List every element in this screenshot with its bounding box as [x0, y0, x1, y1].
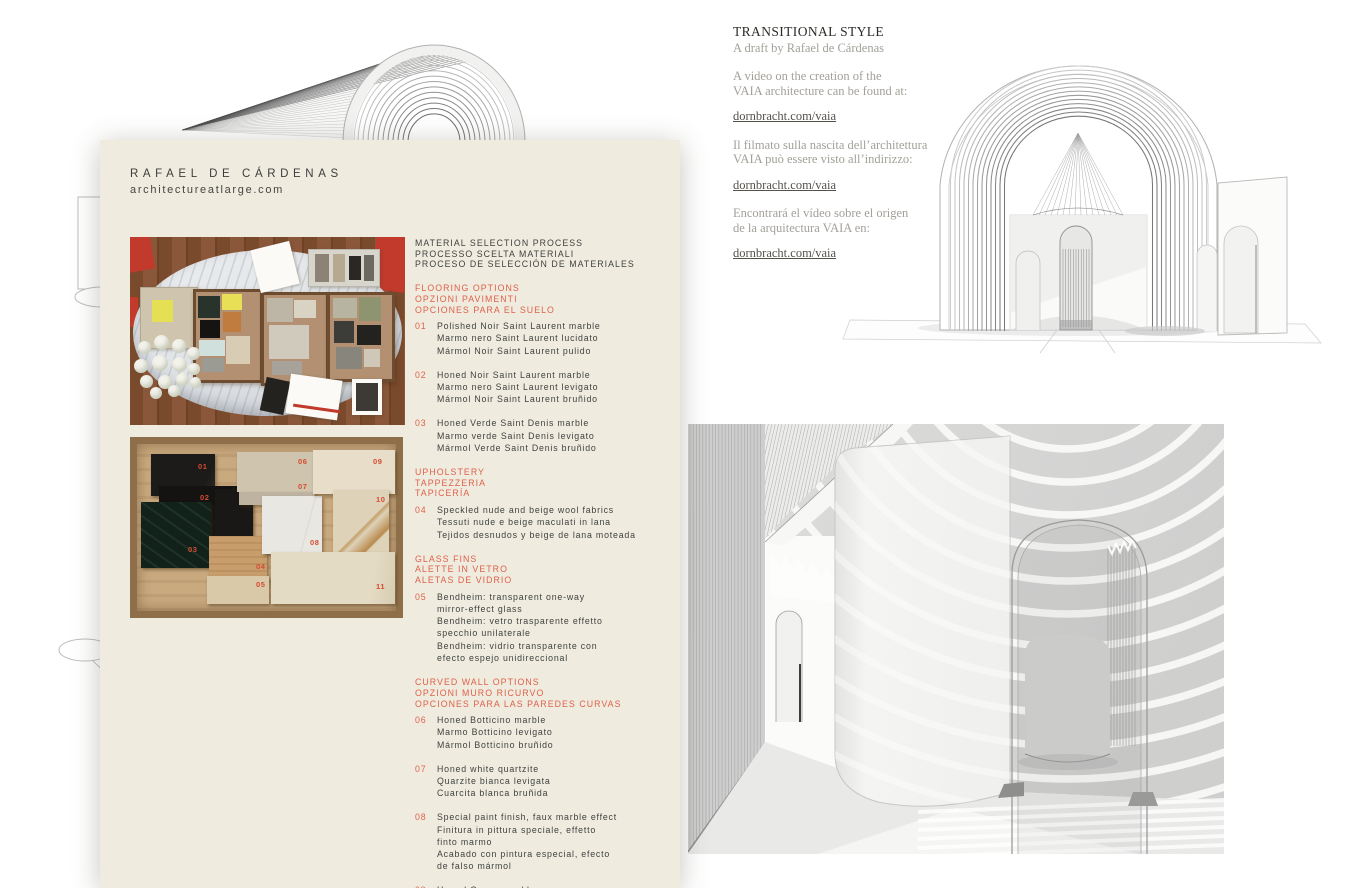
- small-photos: [352, 379, 382, 415]
- material-item-lines: Polished Noir Saint Laurent marbleMarmo …: [437, 320, 601, 357]
- flower-bouquet: [132, 333, 210, 401]
- section-heading-line: ALETTE IN VETRO: [415, 564, 673, 575]
- red-chair: [130, 237, 155, 273]
- material-item-line: Acabado con pintura especial, efecto: [437, 848, 617, 860]
- material-item-line: Tejidos desnudos y beige de lana moteada: [437, 529, 636, 541]
- material-item-number: 02: [415, 369, 437, 406]
- intro-paragraph-line: VAIA architecture can be found at:: [733, 84, 933, 99]
- material-item-line: Honed Crema marble: [437, 884, 543, 888]
- material-item-line: Marmo verde Saint Denis levigato: [437, 430, 597, 442]
- intro-line: PROCESO DE SELECCIÓN DE MATERIALES: [415, 259, 673, 270]
- section-heading-line: OPZIONI MURO RICURVO: [415, 688, 673, 699]
- material-item-line: specchio unilaterale: [437, 627, 603, 639]
- material-item-number: 06: [415, 714, 437, 751]
- material-item-number: 03: [415, 417, 437, 454]
- sample-tray: [261, 292, 329, 386]
- material-item: 03Honed Verde Saint Denis marbleMarmo ve…: [415, 417, 673, 454]
- sample-number: 04: [256, 562, 266, 571]
- page: TRANSITIONAL STYLE A draft by Rafael de …: [0, 0, 1356, 888]
- material-item-lines: Honed Botticino marbleMarmo Botticino le…: [437, 714, 554, 751]
- material-item-lines: Honed Verde Saint Denis marbleMarmo verd…: [437, 417, 597, 454]
- intro-text-column: TRANSITIONAL STYLE A draft by Rafael de …: [733, 25, 933, 261]
- material-item-line: efecto espejo unidireccional: [437, 652, 603, 664]
- section-heading-line: OPCIONES PARA EL SUELO: [415, 305, 673, 316]
- sample-number: 05: [256, 580, 266, 589]
- material-item-line: finto marmo: [437, 836, 617, 848]
- materials-intro: MATERIAL SELECTION PROCESSPROCESSO SCELT…: [415, 238, 673, 270]
- material-item-line: Mármol Verde Saint Denis bruñido: [437, 442, 597, 454]
- material-item-number: 08: [415, 811, 437, 872]
- material-item-line: Mármol Botticino bruñido: [437, 739, 554, 751]
- section-heading-line: UPHOLSTERY: [415, 467, 673, 478]
- sample-09: [313, 450, 395, 494]
- intro-paragraph-line: Encontrará el vídeo sobre el origen: [733, 206, 933, 221]
- material-item: 06Honed Botticino marbleMarmo Botticino …: [415, 714, 673, 751]
- material-item-line: Mármol Noir Saint Laurent pulido: [437, 345, 601, 357]
- intro-line: PROCESSO SCELTA MATERIALI: [415, 249, 673, 260]
- sample-number: 10: [376, 495, 386, 504]
- section-heading: FLOORING OPTIONSOPZIONI PAVIMENTIOPCIONE…: [415, 283, 673, 315]
- material-item-line: Bendheim: transparent one-way: [437, 591, 603, 603]
- material-item-number: 09: [415, 884, 437, 888]
- sticky-note: [152, 300, 173, 322]
- sample-number: 08: [310, 538, 320, 547]
- vault-tube-drawing: [160, 12, 540, 142]
- material-item-line: Bendheim: vidrio transparente con: [437, 640, 603, 652]
- materials-list: FLOORING OPTIONSOPZIONI PAVIMENTIOPCIONE…: [415, 283, 673, 888]
- sample-number: 11: [376, 582, 385, 591]
- material-item-line: Marmo nero Saint Laurent levigato: [437, 381, 598, 393]
- section-heading-line: FLOORING OPTIONS: [415, 283, 673, 294]
- section-heading-line: TAPPEZZERIA: [415, 478, 673, 489]
- interior-rendering: [688, 424, 1224, 854]
- material-item-line: Tessuti nude e beige maculati in lana: [437, 516, 636, 528]
- material-item-number: 01: [415, 320, 437, 357]
- material-item: 05Bendheim: transparent one-waymirror-ef…: [415, 591, 673, 664]
- sample-number: 09: [373, 457, 383, 466]
- material-item-line: Quarzite bianca levigata: [437, 775, 551, 787]
- material-item-number: 05: [415, 591, 437, 664]
- material-item-line: Speckled nude and beige wool fabrics: [437, 504, 636, 516]
- materials-section: UPHOLSTERYTAPPEZZERIATAPICERÍA04Speckled…: [415, 467, 673, 541]
- intro-paragraph-line: VAIA può essere visto all’indirizzo:: [733, 152, 933, 167]
- material-item-line: Polished Noir Saint Laurent marble: [437, 320, 601, 332]
- material-item-line: Bendheim: vetro trasparente effetto: [437, 615, 603, 627]
- page-subtitle: A draft by Rafael de Cárdenas: [733, 41, 933, 56]
- material-item-lines: Bendheim: transparent one-waymirror-effe…: [437, 591, 603, 664]
- material-item-line: Honed Verde Saint Denis marble: [437, 417, 597, 429]
- intro-paragraph: Il filmato sulla nascita dell’architettu…: [733, 138, 933, 193]
- video-link[interactable]: dornbracht.com/vaia: [733, 178, 836, 193]
- sample-tray: [327, 292, 395, 382]
- material-item-line: Honed Noir Saint Laurent marble: [437, 369, 598, 381]
- material-item-line: Marmo nero Saint Laurent lucidato: [437, 332, 601, 344]
- material-item-line: Honed white quartzite: [437, 763, 551, 775]
- brand-url[interactable]: architectureatlarge.com: [130, 184, 343, 196]
- loose-papers: [285, 374, 342, 421]
- acrylic-sample-box: [308, 249, 380, 287]
- section-heading: UPHOLSTERYTAPPEZZERIATAPICERÍA: [415, 467, 673, 499]
- materials-section: CURVED WALL OPTIONSOPZIONI MURO RICURVOO…: [415, 677, 673, 888]
- material-item-line: Mármol Noir Saint Laurent bruñido: [437, 393, 598, 405]
- section-heading-line: OPZIONI PAVIMENTI: [415, 294, 673, 305]
- sample-number: 01: [198, 462, 208, 471]
- material-item: 08Special paint finish, faux marble effe…: [415, 811, 673, 872]
- sample-box-photo: 0102030405060708091011: [130, 437, 403, 618]
- material-item-line: Marmo Botticino levigato: [437, 726, 554, 738]
- section-heading-line: GLASS FINS: [415, 554, 673, 565]
- section-heading-line: OPCIONES PARA LAS PAREDES CURVAS: [415, 699, 673, 710]
- material-item-line: Cuarcita blanca bruñida: [437, 787, 551, 799]
- material-item-line: mirror-effect glass: [437, 603, 603, 615]
- material-item-lines: Honed white quartziteQuarzite bianca lev…: [437, 763, 551, 800]
- material-item-line: Finitura in pittura speciale, effetto: [437, 824, 617, 836]
- material-item-lines: Honed Crema marbleMarmo crema levigatoMá…: [437, 884, 543, 888]
- sample-number: 06: [298, 457, 308, 466]
- sample-number: 07: [298, 482, 308, 491]
- material-item: 02Honed Noir Saint Laurent marbleMarmo n…: [415, 369, 673, 406]
- intro-paragraph-line: Il filmato sulla nascita dell’architettu…: [733, 138, 933, 153]
- material-item: 09Honed Crema marbleMarmo crema levigato…: [415, 884, 673, 888]
- video-link[interactable]: dornbracht.com/vaia: [733, 109, 836, 124]
- video-link[interactable]: dornbracht.com/vaia: [733, 246, 836, 261]
- material-item-line: Special paint finish, faux marble effect: [437, 811, 617, 823]
- sample-11: [271, 552, 395, 604]
- brand-block: RAFAEL DE CÁRDENAS architectureatlarge.c…: [130, 168, 343, 196]
- section-heading-line: TAPICERÍA: [415, 488, 673, 499]
- material-item-lines: Speckled nude and beige wool fabricsTess…: [437, 504, 636, 541]
- materials-section: GLASS FINSALETTE IN VETROALETAS DE VIDRI…: [415, 554, 673, 664]
- intro-paragraph: Encontrará el vídeo sobre el origende la…: [733, 206, 933, 261]
- materials-section: FLOORING OPTIONSOPZIONI PAVIMENTIOPCIONE…: [415, 283, 673, 454]
- section-heading: GLASS FINSALETTE IN VETROALETAS DE VIDRI…: [415, 554, 673, 586]
- page-title: TRANSITIONAL STYLE: [733, 25, 933, 40]
- brand-name: RAFAEL DE CÁRDENAS: [130, 168, 343, 180]
- material-item-lines: Special paint finish, faux marble effect…: [437, 811, 617, 872]
- material-item: 01Polished Noir Saint Laurent marbleMarm…: [415, 320, 673, 357]
- material-item-line: Honed Botticino marble: [437, 714, 554, 726]
- materials-panel: RAFAEL DE CÁRDENAS architectureatlarge.c…: [100, 140, 680, 888]
- section-heading: CURVED WALL OPTIONSOPZIONI MURO RICURVOO…: [415, 677, 673, 709]
- sample-number: 02: [200, 493, 210, 502]
- section-heading-line: ALETAS DE VIDRIO: [415, 575, 673, 586]
- materials-table-photo: [130, 237, 405, 425]
- material-item: 07Honed white quartziteQuarzite bianca l…: [415, 763, 673, 800]
- material-item-line: de falso mármol: [437, 860, 617, 872]
- intro-paragraph: A video on the creation of theVAIA archi…: [733, 69, 933, 124]
- materials-column: MATERIAL SELECTION PROCESSPROCESSO SCELT…: [415, 238, 673, 888]
- material-item-number: 07: [415, 763, 437, 800]
- material-item-number: 04: [415, 504, 437, 541]
- intro-paragraph-line: A video on the creation of the: [733, 69, 933, 84]
- sample-03: [141, 502, 211, 568]
- material-item: 04Speckled nude and beige wool fabricsTe…: [415, 504, 673, 541]
- section-heading-line: CURVED WALL OPTIONS: [415, 677, 673, 688]
- intro-line: MATERIAL SELECTION PROCESS: [415, 238, 673, 249]
- material-item-lines: Honed Noir Saint Laurent marbleMarmo ner…: [437, 369, 598, 406]
- intro-paragraph-line: de la arquitectura VAIA en:: [733, 221, 933, 236]
- sample-number: 03: [188, 545, 198, 554]
